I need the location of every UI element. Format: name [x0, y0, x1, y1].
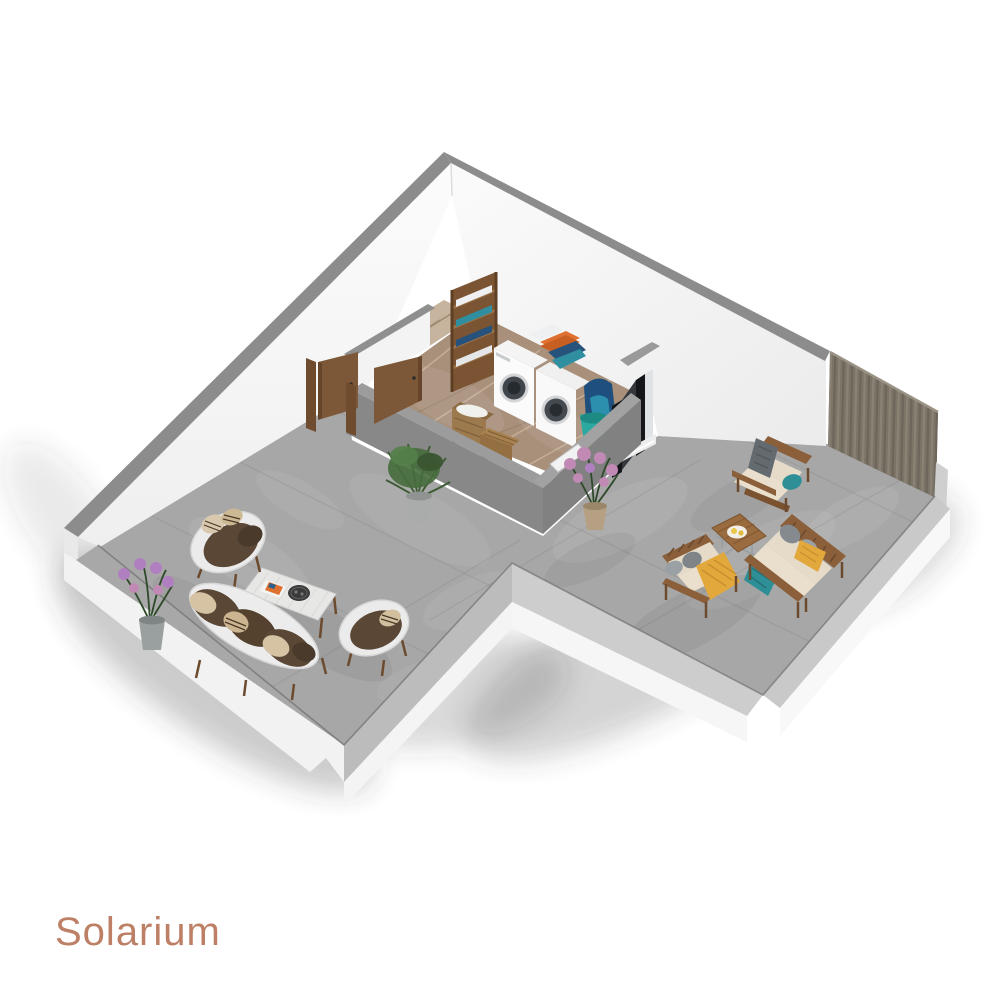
- door-frame-left: [306, 358, 316, 432]
- lemon: [738, 530, 743, 535]
- round-serving-tray: [288, 585, 310, 601]
- floor-plan-title: Solarium: [55, 910, 221, 954]
- door-handle: [412, 376, 416, 380]
- plate: [727, 526, 747, 539]
- page: Solarium: [0, 0, 1000, 1000]
- lemon: [731, 528, 737, 534]
- floorplan-render: Solarium: [0, 0, 1000, 1000]
- apex-corner-edge: [451, 163, 452, 196]
- door-frame-mid: [346, 382, 356, 436]
- storage-shelf-with-towels: [452, 272, 496, 392]
